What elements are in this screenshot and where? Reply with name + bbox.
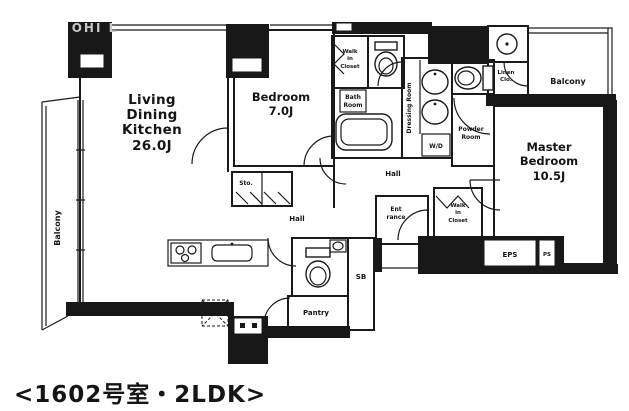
wall-block [66,302,234,316]
washer-dryer-label: W/D [429,143,443,150]
ldk-label-line3: Kitchen [122,122,182,138]
bedroom-size: 7.0J [269,104,294,118]
wic-right-label-line1: Walk [450,203,465,209]
toilet-icon [455,67,481,89]
hall-lower-label: Hall [289,215,304,223]
wic-top-label-line2: in [347,56,353,62]
floor-plan-image: OHI L Living Dining Kitchen 26.0J Bedroo… [0,0,629,411]
toilet-tank-icon [306,248,330,257]
entrance-label-line2: rance [387,214,406,221]
ac-sleeve-box [232,58,262,72]
ps-label: PS [543,252,551,258]
wall-block [374,238,382,272]
eps-label: EPS [503,251,518,259]
linen-label-line1: Linen [498,70,515,76]
bath-room-label-line2: Room [343,102,362,109]
ldk-label-line2: Dining [126,107,177,123]
watermark-text: OHI L [72,21,119,35]
powder-room-label-line1: Powder [458,126,483,133]
wic-right-label-line3: Closet [448,218,468,224]
ldk-label-size: 26.0J [132,138,172,154]
drain-dot [505,42,508,45]
entrance-label-line1: Ent [390,206,401,213]
wic-top-label-line3: Closet [340,64,360,70]
floor-plan: OHI L Living Dining Kitchen 26.0J Bedroo… [0,0,629,411]
balcony-right-label: Balcony [550,77,586,86]
wic-right-label-line2: in [455,210,461,216]
toilet-tank-icon [375,42,397,50]
hall-upper-label: Hall [385,170,400,178]
ldk-label-line1: Living [128,92,176,108]
faucet-dot [231,243,234,246]
ac-sleeve-box [336,23,352,31]
shaft-block [428,26,488,64]
pantry-label: Pantry [303,309,329,317]
dot-mark [240,323,245,328]
shoe-box-label: SB [356,273,366,281]
dressing-room-label: Dressing Room [406,83,413,134]
dot-mark [252,323,257,328]
wall-block [262,326,350,338]
faucet-dot [434,73,437,76]
master-bedroom-size: 10.5J [533,169,566,183]
bedroom-label: Bedroom [252,90,310,104]
step-box [234,318,262,334]
bath-room-label-line1: Bath [345,94,361,101]
ac-sleeve-box [80,54,104,68]
toilet-tank-icon [483,66,493,90]
wall-block [604,100,617,274]
master-bedroom-label-line2: Bedroom [520,154,578,168]
master-bedroom-label-line1: Master [526,140,571,154]
wic-top-label-line1: Walk [342,49,357,55]
unit-caption: <1602号室・2LDK> [14,381,266,408]
linen-label-line2: Clo. [500,77,512,83]
storage-label: Sto. [239,180,253,187]
powder-room-label-line2: Room [461,134,480,141]
balcony-left-label: Balcony [53,210,62,246]
faucet-dot [434,103,437,106]
